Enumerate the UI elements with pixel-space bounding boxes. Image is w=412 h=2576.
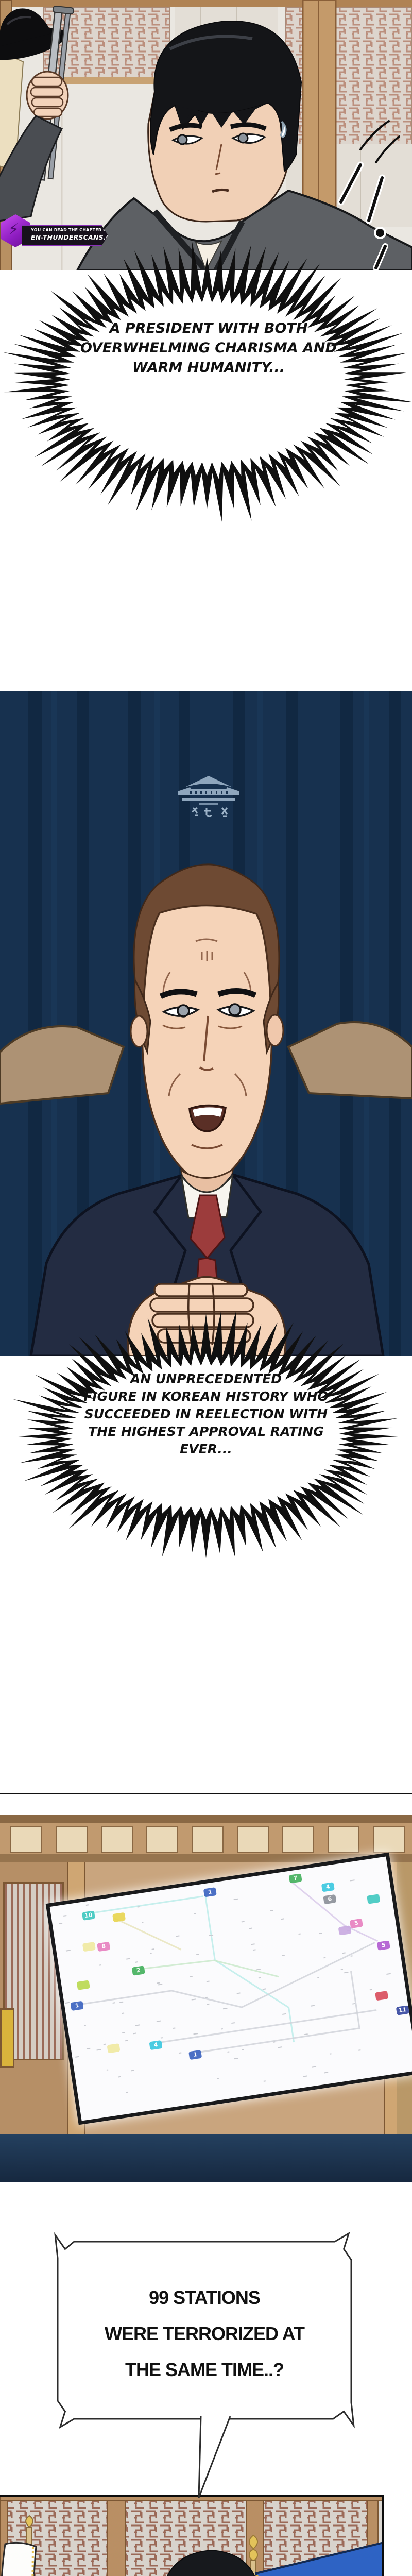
bubble-line: WARM HUMANITY... [54, 358, 363, 378]
line-number-badge: 4 [321, 1882, 335, 1892]
bubble-line: WERE TERRORIZED AT [68, 2316, 341, 2352]
panel-spokesman [0, 2495, 384, 2576]
panel-president [0, 691, 412, 1356]
line-number-badge [112, 1912, 126, 1922]
bubble-unprecedented: AN UNPRECEDENTED FIGURE IN KOREAN HISTOR… [51, 1370, 360, 1458]
line-number-badge: 4 [149, 2040, 162, 2050]
watermark-line1: YOU CAN READ THE CHAPTER ON: [31, 228, 105, 232]
line-number-badge: 5 [377, 1940, 390, 1950]
panel-map-room: 101821417465511 [0, 1793, 412, 2182]
ceiling-block [146, 1826, 178, 1853]
ceiling-block [56, 1826, 88, 1853]
gripping-hand [27, 72, 68, 119]
ceiling-block [237, 1826, 269, 1853]
bubble-charisma: A PRESIDENT WITH BOTH OVERWHELMING CHARI… [54, 319, 363, 378]
line-number-badge: 7 [289, 1873, 302, 1883]
panel2-art [0, 691, 412, 1356]
bubble-line: SUCCEEDED IN REELECTION WITH [51, 1405, 360, 1423]
line-number-badge: 1 [188, 2050, 202, 2060]
bubble-line: A PRESIDENT WITH BOTH [54, 319, 363, 338]
line-number-badge: 10 [82, 1910, 95, 1920]
bubble-line: FIGURE IN KOREAN HISTORY WHO [51, 1388, 360, 1405]
line-number-badge [375, 1991, 388, 2001]
line-number-badge [82, 1942, 96, 1952]
bubble-line: AN UNPRECEDENTED [51, 1370, 360, 1388]
webtoon-page: ⚡ YOU CAN READ THE CHAPTER ON: EN-THUNDE… [0, 0, 412, 2576]
line-number-badge: 11 [396, 2005, 409, 2015]
line-number-badge: 2 [132, 1965, 145, 1975]
bubble-stations99: 99 STATIONS WERE TERRORIZED AT THE SAME … [68, 2280, 341, 2388]
line-number-badge: 1 [203, 1887, 217, 1897]
bubble-line: 99 STATIONS [68, 2280, 341, 2316]
line-number-badge: 1 [71, 2001, 84, 2011]
line-number-badge [107, 2043, 120, 2053]
line-number-badge [77, 1980, 90, 1990]
line-number-badge: 8 [97, 1942, 110, 1952]
watermark-line2: EN-THUNDERSCANS.COM [31, 233, 105, 241]
line-number-badge: 6 [323, 1894, 336, 1904]
man-head [148, 21, 301, 222]
bubble-line: THE SAME TIME..? [68, 2352, 341, 2388]
gold-picture [0, 2008, 14, 2068]
watermark-banner: YOU CAN READ THE CHAPTER ON: EN-THUNDERS… [22, 225, 108, 246]
ceiling-block [328, 1826, 359, 1853]
ceiling-block [101, 1826, 133, 1853]
bubble-line: THE HIGHEST APPROVAL RATING [51, 1423, 360, 1440]
ceiling-block [10, 1826, 42, 1853]
ceiling-block [373, 1826, 405, 1853]
line-number-badge [338, 1925, 352, 1935]
line-number-badge [367, 1894, 380, 1904]
ceiling-block [192, 1826, 224, 1853]
ceiling-block [282, 1826, 314, 1853]
bubble-line: OVERWHELMING CHARISMA AND [54, 338, 363, 358]
bubble-line: EVER... [51, 1440, 360, 1458]
panel4-art [0, 2495, 384, 2576]
watermark-badge[interactable]: ⚡ YOU CAN READ THE CHAPTER ON: EN-THUNDE… [1, 214, 119, 252]
line-number-badge: 5 [350, 1919, 363, 1928]
navy-table [0, 2134, 412, 2182]
